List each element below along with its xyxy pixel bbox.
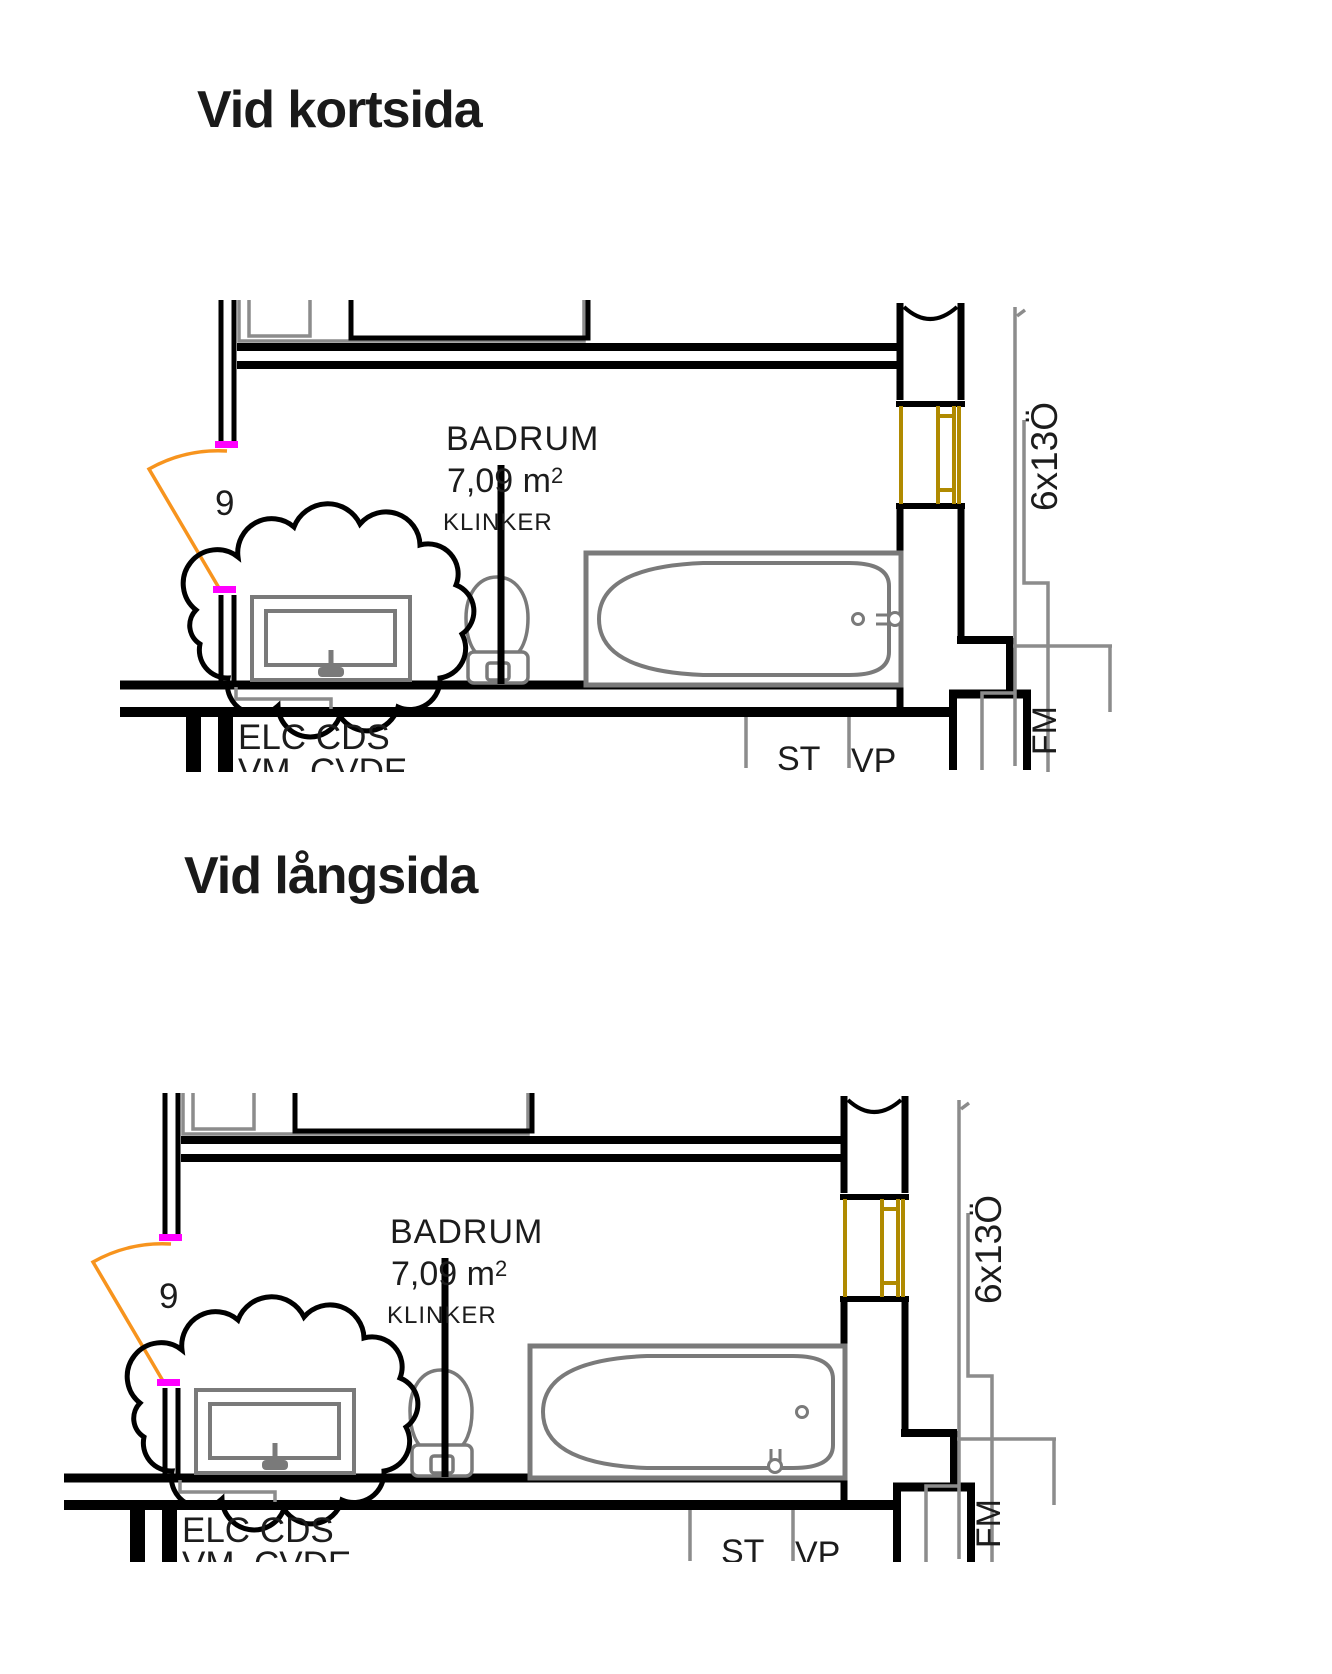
window-size-label: 6x13Ö: [1026, 402, 1065, 511]
floor-plan: [64, 1093, 1056, 1562]
area-superscript: 2: [551, 463, 563, 488]
flooring-label: KLINKER: [387, 1303, 497, 1328]
floor-plan-page: Vid kortsida: [0, 0, 1332, 1674]
window-size-label: 6x13Ö: [970, 1195, 1009, 1304]
shaft-vp-label: VP: [795, 1537, 840, 1562]
plan-langsida-drawing: [0, 1058, 1332, 1562]
installations-label-2: VM CVDE: [238, 754, 407, 772]
shaft-st-label: ST: [721, 1535, 764, 1562]
flooring-label: KLINKER: [443, 510, 553, 535]
room-name-label: BADRUM: [390, 1215, 543, 1251]
floor-plan: [120, 300, 1112, 772]
plan-kortsida: BADRUM 7,09 m2 KLINKER 9 ELC CDS VM CVDE…: [0, 280, 1332, 772]
area-superscript: 2: [495, 1256, 507, 1281]
installations-label-2: VM CVDE: [182, 1547, 351, 1562]
door-number-label: 9: [159, 1279, 178, 1316]
room-area-label: 7,09 m2: [391, 1257, 507, 1293]
shaft-vp-label: VP: [851, 744, 896, 772]
door-number-label: 9: [215, 486, 234, 523]
fm-label: FM: [972, 1499, 1008, 1548]
shaft-st-label: ST: [777, 742, 820, 772]
fm-label: FM: [1028, 706, 1064, 755]
plan-kortsida-drawing: [0, 280, 1332, 772]
room-area-label: 7,09 m2: [447, 464, 563, 500]
section-title-langsida: Vid långsida: [184, 846, 477, 906]
section-title-kortsida: Vid kortsida: [197, 80, 482, 140]
plan-langsida: BADRUM 7,09 m2 KLINKER 9 ELC CDS VM CVDE…: [0, 1058, 1332, 1562]
room-name-label: BADRUM: [446, 422, 599, 458]
